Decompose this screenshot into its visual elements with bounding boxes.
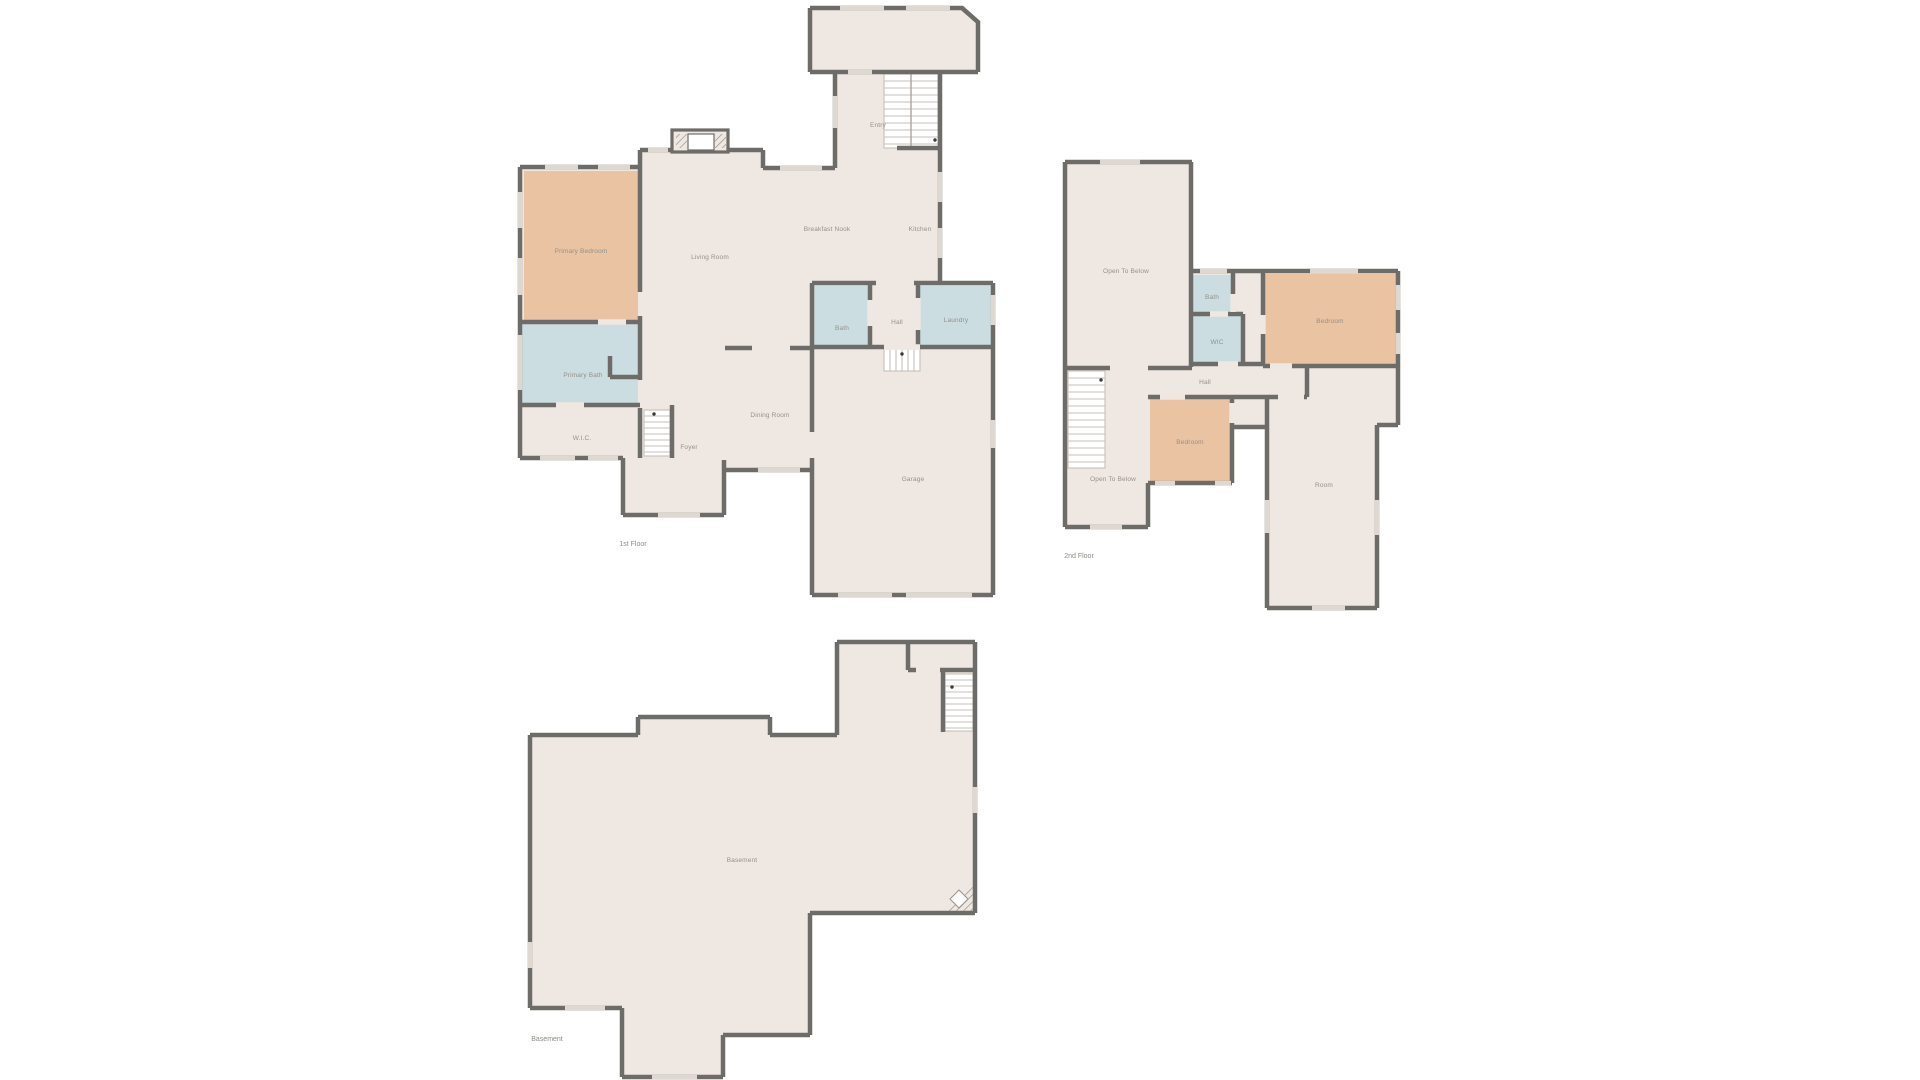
room-label-open-to-below-lower: Open To Below: [1090, 476, 1136, 483]
room-label-bath-second: Bath: [1205, 294, 1219, 301]
caption-basement: Basement: [531, 1036, 563, 1043]
room-label-bedroom-lower: Bedroom: [1176, 439, 1203, 446]
first-floor-plan: Primary Bedroom Living Room Breakfast No…: [520, 6, 993, 595]
room-label-open-to-below-upper: Open To Below: [1103, 268, 1149, 275]
room-label-entry: Entry: [870, 122, 887, 129]
caption-first-floor: 1st Floor: [619, 541, 647, 548]
second-floor-footprint: [1065, 162, 1398, 608]
floor-plans-canvas: Primary Bedroom Living Room Breakfast No…: [0, 0, 1920, 1080]
garage-step-stairs-icon: [884, 349, 920, 371]
first-floor-top-room-footprint: [810, 6, 978, 72]
room-label-garage: Garage: [902, 476, 925, 483]
room-label-wic: W.I.C.: [573, 435, 592, 442]
room-label-wic-second: WIC: [1210, 339, 1223, 346]
basement-plan: Basement Basement: [530, 642, 975, 1077]
room-label-foyer: Foyer: [680, 444, 698, 451]
room-label-breakfast-nook: Breakfast Nook: [804, 226, 851, 233]
room-primary-bath: [522, 324, 638, 403]
room-label-basement: Basement: [727, 857, 758, 864]
main-staircase-icon: [884, 74, 938, 148]
room-label-primary-bath: Primary Bath: [563, 372, 603, 379]
second-floor-staircase-icon: [1068, 371, 1105, 468]
basement-staircase-icon: [945, 674, 973, 731]
fireplace-icon: [672, 130, 728, 152]
basement-access-stairs-icon: [644, 410, 670, 456]
room-label-bath-first: Bath: [835, 325, 849, 332]
room-label-room: Room: [1315, 482, 1333, 489]
caption-second-floor: 2nd Floor: [1064, 553, 1094, 560]
second-floor-plan: Open To Below Bath WIC Bedroom Hall Open…: [1064, 162, 1398, 608]
room-label-hall-second: Hall: [1199, 379, 1211, 386]
room-label-hall-first: Hall: [891, 319, 903, 326]
room-label-primary-bedroom: Primary Bedroom: [555, 248, 608, 255]
room-laundry: [920, 286, 991, 345]
room-bath-first: [814, 286, 868, 345]
room-label-laundry: Laundry: [944, 317, 969, 324]
room-label-bedroom-upper: Bedroom: [1316, 318, 1343, 325]
room-label-dining-room: Dining Room: [750, 412, 789, 419]
room-primary-bedroom: [524, 171, 638, 320]
room-label-living-room: Living Room: [691, 254, 729, 261]
room-label-kitchen: Kitchen: [909, 226, 932, 233]
